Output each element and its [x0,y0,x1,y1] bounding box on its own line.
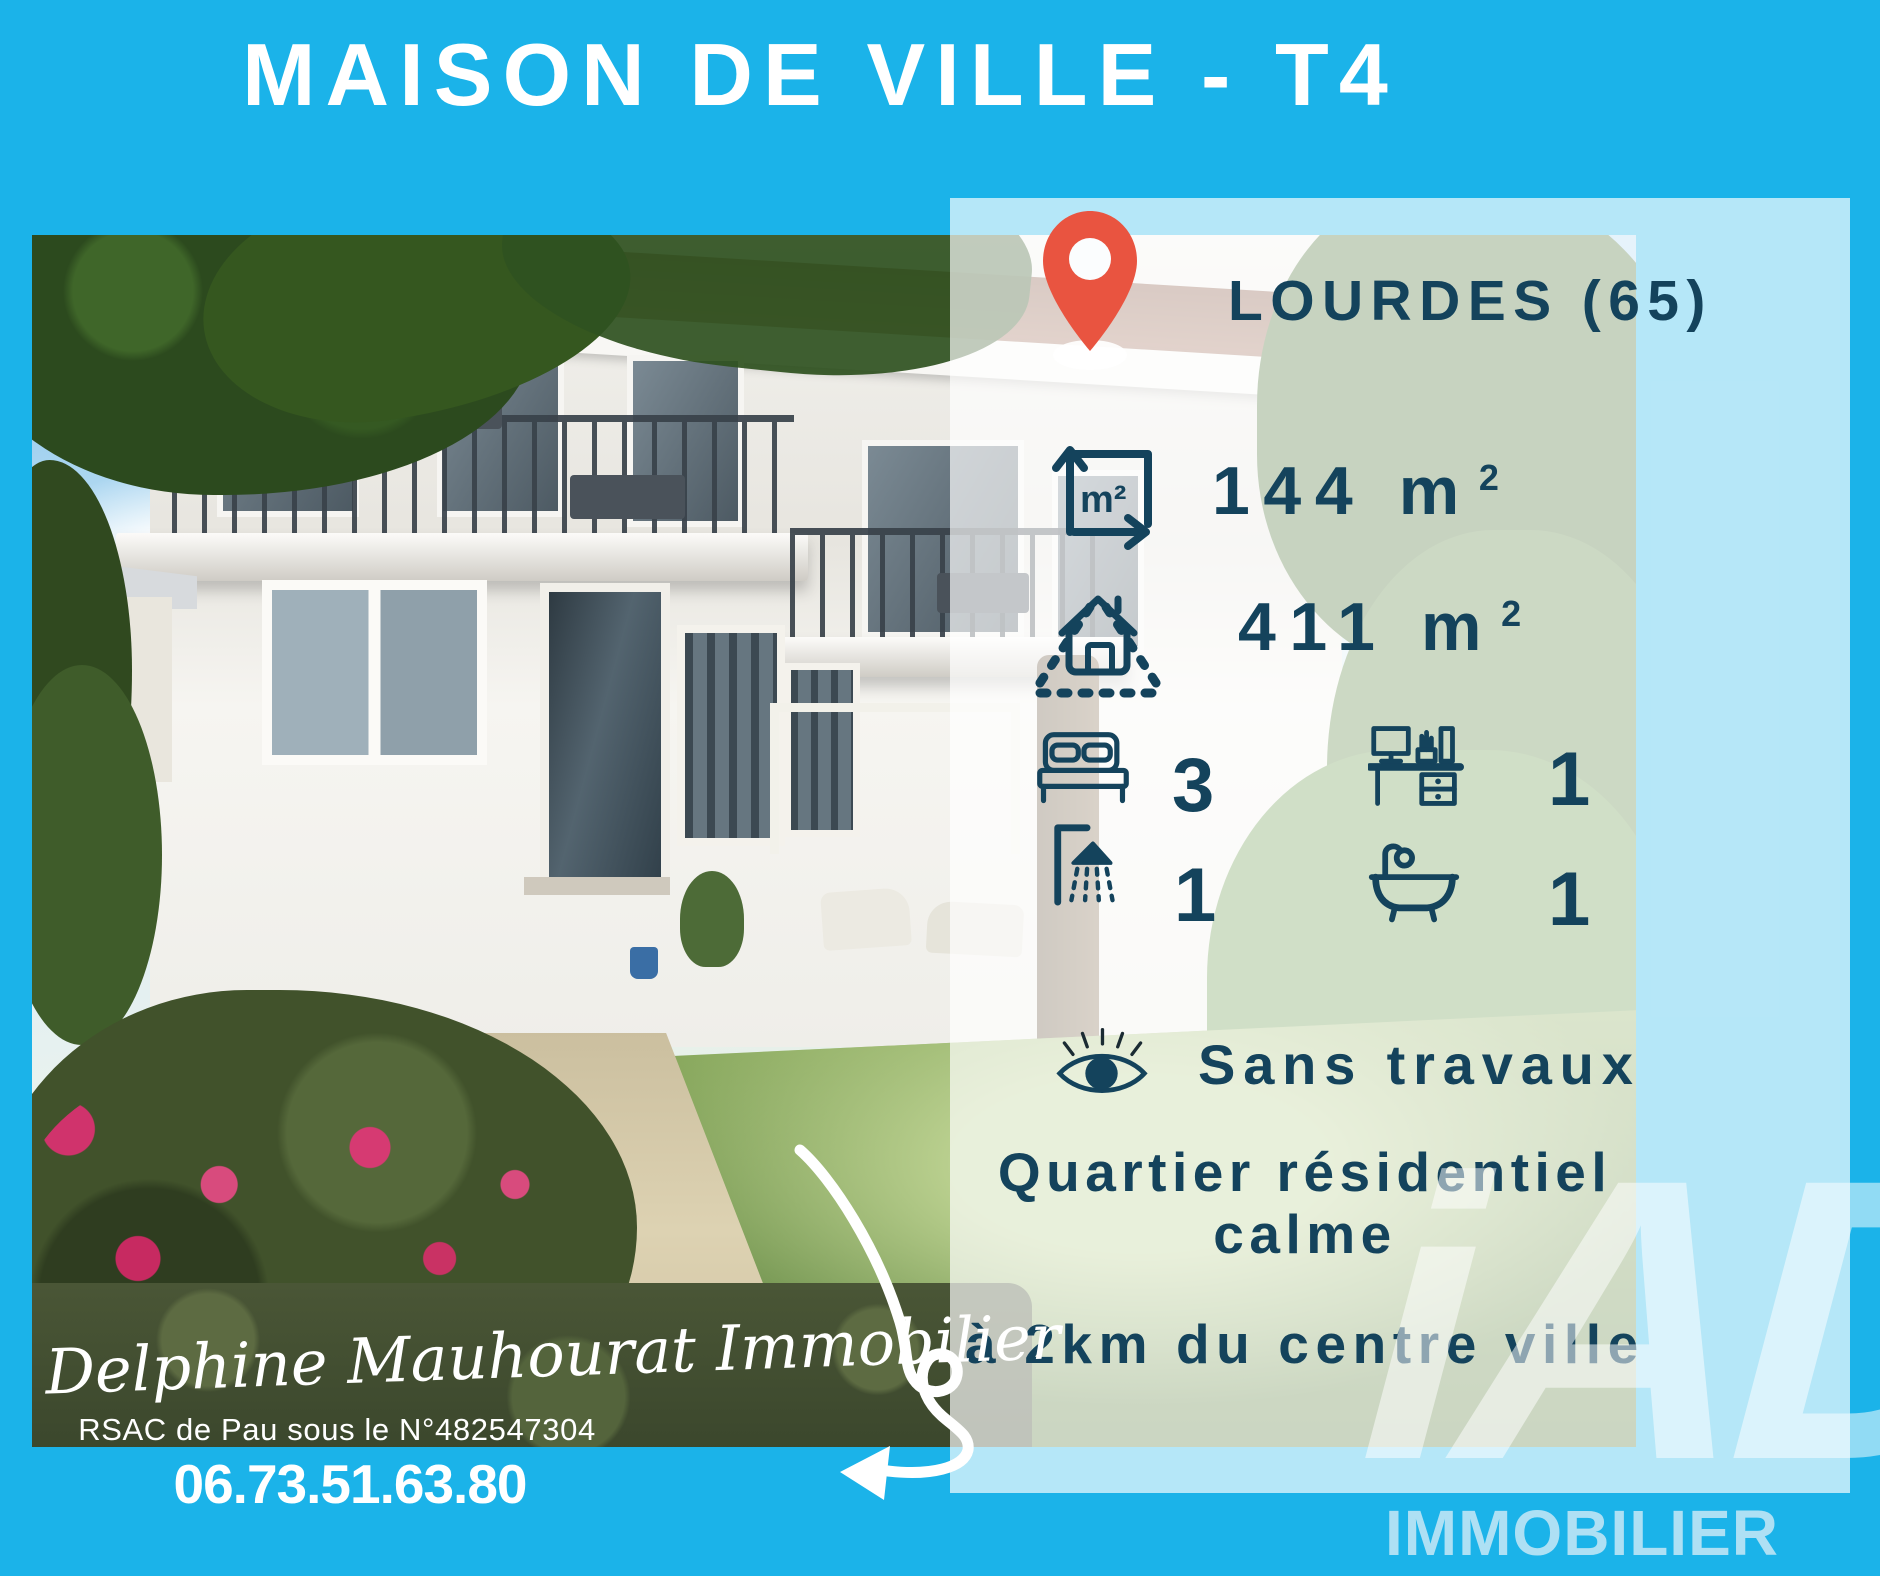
land-area-value: 411 m2 [1238,588,1521,666]
bathtubs-count: 1 [1548,856,1590,943]
bathtub-icon [1366,835,1462,925]
photo-door-step [524,877,670,895]
brand-wordmark: IMMOBILIER [1385,1496,1779,1570]
location-label: LOURDES (65) [1228,268,1713,334]
photo-ground-window [262,580,487,765]
shower-icon [1046,818,1134,906]
offices-count: 1 [1548,736,1590,823]
living-area-value: 144 m2 [1212,452,1499,530]
iad-logo-watermark: iAD [1356,1150,1880,1490]
photo-garden-chair [820,887,912,951]
photo-bucket [630,947,658,979]
feature-condition: Sans travaux [1198,1032,1641,1097]
showers-count: 1 [1174,852,1216,939]
living-area-number: 144 [1212,453,1366,529]
living-area-sup: 2 [1479,457,1499,498]
page-title: MAISON DE VILLE - T4 [0,24,1640,126]
real-estate-flyer: MAISON DE VILLE - T4 [0,0,1880,1576]
bedrooms-count: 3 [1172,742,1214,829]
land-area-unit: m [1421,589,1495,665]
agent-phone-number: 06.73.51.63.80 [50,1452,650,1516]
photo-balcony-ledge [116,533,808,581]
desk-icon [1368,722,1464,810]
photo-glass-door [540,583,670,893]
land-area-number: 411 [1238,589,1389,665]
area-m2-icon: m² [1040,428,1180,558]
photo-barred-window [677,625,785,846]
living-area-unit: m [1399,453,1473,529]
hand-drawn-arrow-icon [770,1100,1030,1520]
land-area-sup: 2 [1501,593,1521,634]
eye-icon [1052,1022,1152,1102]
svg-text:m²: m² [1080,479,1126,521]
land-area-icon [1022,565,1174,703]
photo-potted-plant [680,871,744,967]
location-pin-icon [1028,205,1153,375]
photo-planter [570,475,685,519]
agent-rsac-number: RSAC de Pau sous le N°482547304 [57,1412,617,1448]
bed-icon [1036,728,1130,810]
